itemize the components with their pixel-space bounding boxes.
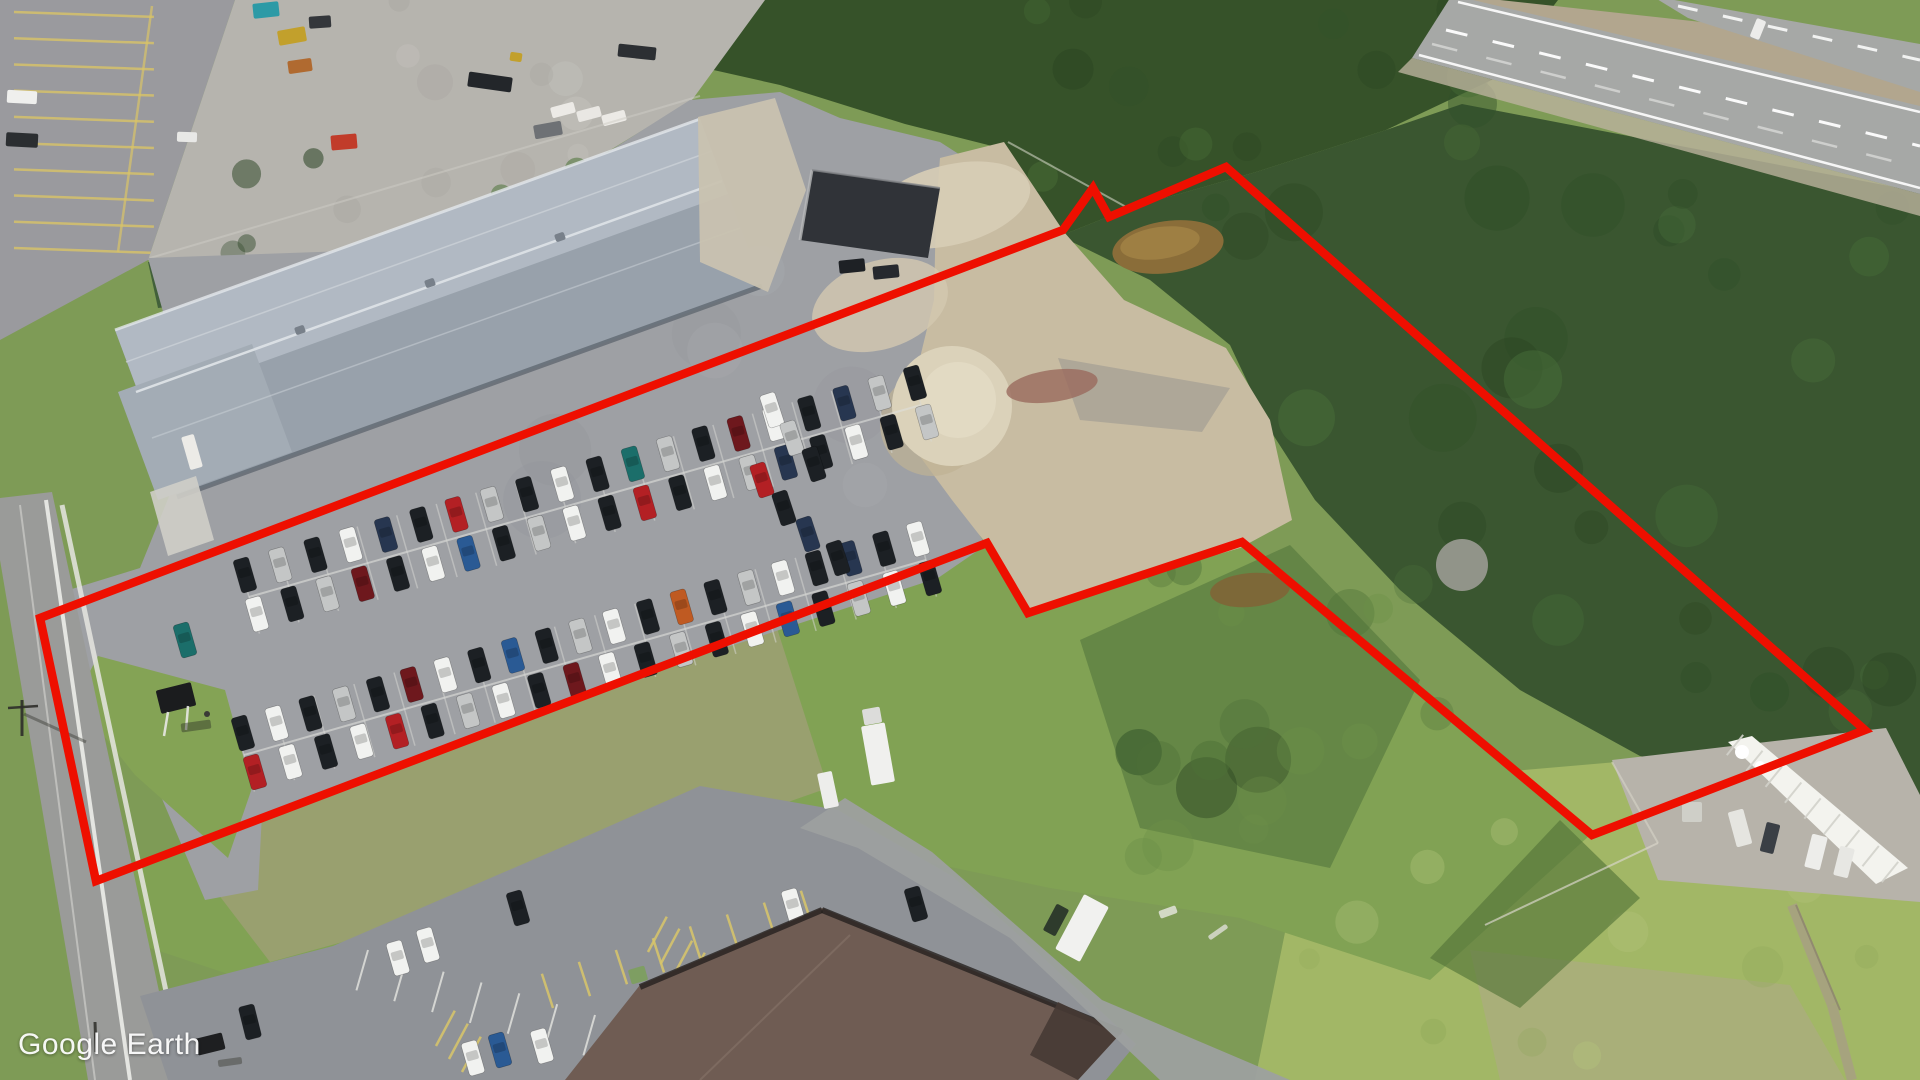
forest-texture-top xyxy=(1444,124,1480,160)
gravel-texture xyxy=(530,63,553,86)
scrub-texture xyxy=(1342,723,1378,759)
scrub-texture xyxy=(1394,565,1433,604)
meadow-texture xyxy=(1299,948,1320,969)
meadow-texture xyxy=(1421,1019,1447,1045)
forest-texture-right xyxy=(1849,237,1889,277)
scrub-texture xyxy=(1191,741,1231,781)
forest-texture-top xyxy=(1052,49,1093,90)
equipment-cabinet xyxy=(1682,802,1702,822)
forest-texture-right xyxy=(1464,166,1529,231)
forest-texture-right xyxy=(1278,389,1335,446)
forest-texture-right xyxy=(1681,662,1712,693)
island-light xyxy=(204,711,210,717)
forest-texture-top xyxy=(1318,9,1349,40)
forest-texture-right xyxy=(1679,602,1712,635)
forest-texture-right xyxy=(1534,444,1583,493)
scrub-texture xyxy=(1136,741,1180,785)
white-pickup xyxy=(177,132,197,143)
meadow-texture xyxy=(1855,945,1879,969)
pickup-truck xyxy=(872,264,899,280)
forest-texture-right xyxy=(1658,206,1696,244)
forest-texture-top xyxy=(1233,132,1262,161)
meadow-texture xyxy=(1410,850,1444,884)
construction-equipment xyxy=(309,15,332,29)
forest-texture-top xyxy=(1179,128,1212,161)
forest-texture-right xyxy=(1532,594,1584,646)
red-container xyxy=(330,133,357,150)
forest-texture-right xyxy=(1708,258,1741,291)
forest-texture-right xyxy=(1561,173,1625,237)
meadow-texture xyxy=(1573,1041,1601,1069)
gravel-texture xyxy=(548,61,583,96)
tree-band-texture xyxy=(232,159,261,188)
gravel-texture xyxy=(396,44,420,68)
meadow-texture xyxy=(1518,1028,1547,1057)
forest-texture-right xyxy=(1409,384,1477,452)
meadow-texture xyxy=(1335,900,1378,943)
tree-band-texture xyxy=(238,234,256,252)
parked-car xyxy=(7,90,38,105)
meadow-texture xyxy=(1742,946,1783,987)
box-truck-cab xyxy=(862,707,883,726)
forest-texture-right xyxy=(1574,510,1608,544)
scrub-texture xyxy=(1238,776,1287,825)
tower-dish xyxy=(1735,745,1749,759)
forest-texture-right xyxy=(1802,647,1854,699)
forest-texture-right xyxy=(1504,350,1562,408)
forest-texture-right xyxy=(1668,179,1698,209)
scrub-texture xyxy=(1363,594,1393,624)
forest-texture-right xyxy=(1750,672,1789,711)
meadow-texture xyxy=(1491,818,1518,845)
forest-texture-top xyxy=(1109,66,1149,106)
forest-texture-right xyxy=(1862,652,1916,706)
forest-texture-top xyxy=(1202,194,1230,222)
forest-texture-right xyxy=(1655,485,1718,548)
scrub-texture xyxy=(1277,727,1325,775)
google-earth-watermark: Google Earth xyxy=(18,1028,201,1062)
asphalt-tire-marks xyxy=(843,463,888,508)
gravel-texture xyxy=(421,168,450,197)
tree-band-texture xyxy=(303,148,323,168)
pickup-truck xyxy=(838,258,865,274)
scrub-texture xyxy=(1220,699,1270,749)
gravel-texture xyxy=(417,64,453,100)
construction-equipment xyxy=(252,1,279,19)
scrub-texture xyxy=(1125,838,1162,875)
parked-car xyxy=(6,132,39,148)
forest-texture-top xyxy=(1357,51,1395,89)
forest-texture-right xyxy=(1221,213,1268,260)
google-earth-viewport: Google Earth xyxy=(0,0,1920,1080)
satellite-imagery-canvas[interactable] xyxy=(0,0,1920,1080)
forest-texture-right xyxy=(1791,338,1835,382)
construction-equipment xyxy=(509,52,522,63)
rock-outcrop xyxy=(1436,539,1488,591)
